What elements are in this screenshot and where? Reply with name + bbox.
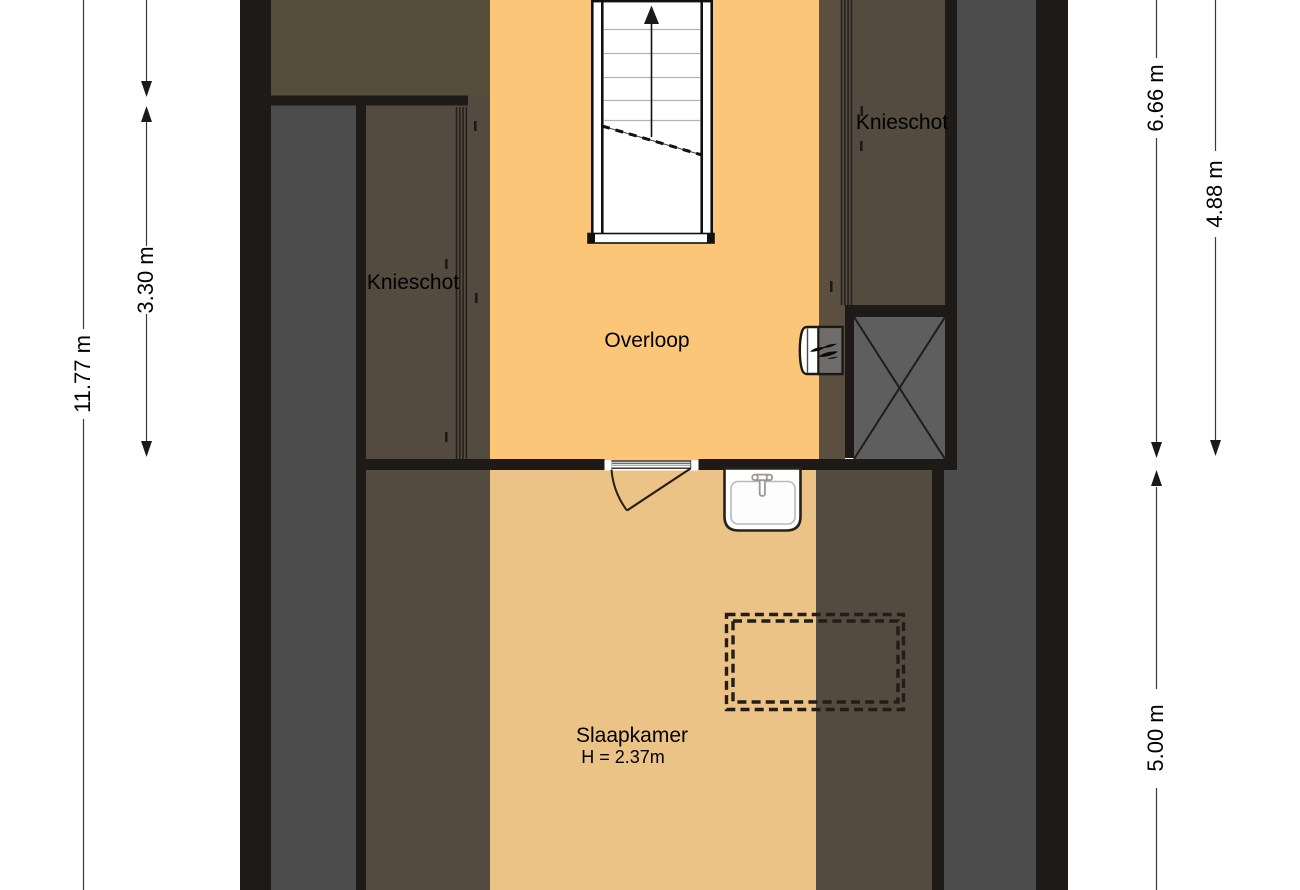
svg-text:5.00 m: 5.00 m xyxy=(1143,704,1168,771)
svg-text:Overloop: Overloop xyxy=(604,329,689,352)
svg-text:6.66 m: 6.66 m xyxy=(1143,64,1168,131)
svg-text:4.88 m: 4.88 m xyxy=(1202,160,1227,227)
svg-text:Slaapkamer: Slaapkamer xyxy=(576,724,688,747)
svg-text:Knieschot: Knieschot xyxy=(856,111,948,134)
svg-text:11.77 m: 11.77 m xyxy=(70,335,95,413)
svg-text:H = 2.37m: H = 2.37m xyxy=(581,747,665,767)
svg-text:3.30 m: 3.30 m xyxy=(133,246,158,313)
svg-text:Knieschot: Knieschot xyxy=(367,271,459,294)
